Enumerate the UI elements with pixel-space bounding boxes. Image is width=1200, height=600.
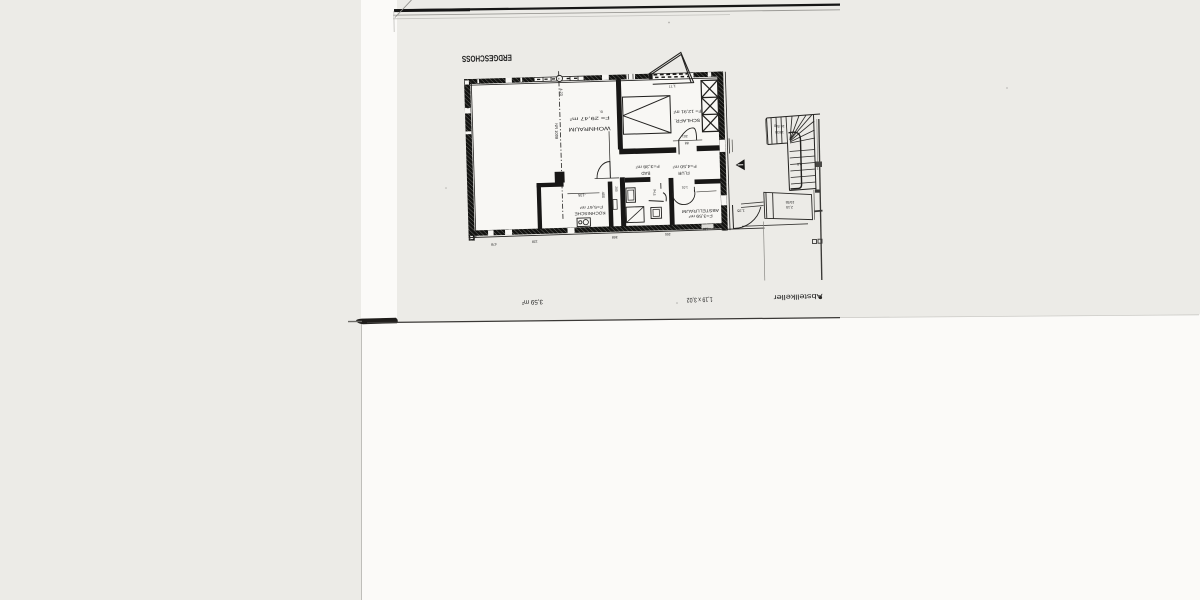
svg-text:19/35: 19/35: [786, 200, 795, 204]
svg-text:F=4,50 m²: F=4,50 m²: [672, 164, 697, 170]
svg-text:1,35: 1,35: [737, 209, 744, 213]
svg-text:FLUR: FLUR: [678, 171, 690, 176]
svg-text:128: 128: [532, 239, 538, 243]
svg-text:F= 12,91 m²: F= 12,91 m²: [673, 109, 702, 115]
svg-text:16 Stg: 16 Stg: [774, 124, 784, 128]
svg-text:F=3,38 m²: F=3,38 m²: [635, 164, 660, 170]
svg-text:368: 368: [612, 235, 618, 239]
svg-text:4,23: 4,23: [559, 88, 563, 96]
svg-text:1,01: 1,01: [681, 185, 688, 189]
svg-text:B.: B.: [599, 110, 602, 114]
svg-text:400: 400: [601, 192, 605, 198]
svg-text:Abstellkeller: Abstellkeller: [773, 292, 823, 301]
svg-text:1,77: 1,77: [669, 84, 676, 88]
svg-text:KOCHNISCHE: KOCHNISCHE: [574, 211, 605, 217]
svg-text:2,15: 2,15: [786, 205, 793, 209]
svg-text:478: 478: [491, 242, 497, 246]
svg-text:280: 280: [614, 186, 618, 192]
svg-text:1,19 x 3,02: 1,19 x 3,02: [686, 295, 712, 303]
svg-text:0,5: 0,5: [797, 162, 802, 166]
svg-text:WOHNRAUM: WOHNRAUM: [568, 125, 610, 132]
svg-text:136: 136: [703, 227, 709, 231]
svg-text:3,59 m²: 3,59 m²: [521, 298, 543, 306]
svg-text:SCHLAFR.: SCHLAFR.: [674, 118, 700, 124]
svg-text:94,5: 94,5: [652, 189, 656, 196]
svg-text:19/35: 19/35: [775, 130, 784, 134]
svg-text:BAD: BAD: [641, 171, 650, 176]
svg-text:-135: -135: [578, 193, 586, 197]
svg-text:ERDGESCHOSS: ERDGESCHOSS: [462, 53, 512, 64]
svg-text:201: 201: [682, 134, 688, 138]
svg-text:NR 1008: NR 1008: [554, 123, 559, 140]
svg-text:F=3,59 m²: F=3,59 m²: [688, 213, 713, 219]
svg-text:88: 88: [685, 141, 689, 145]
svg-text:255: 255: [665, 232, 671, 236]
svg-text:F=5,67 m²: F=5,67 m²: [579, 205, 603, 211]
